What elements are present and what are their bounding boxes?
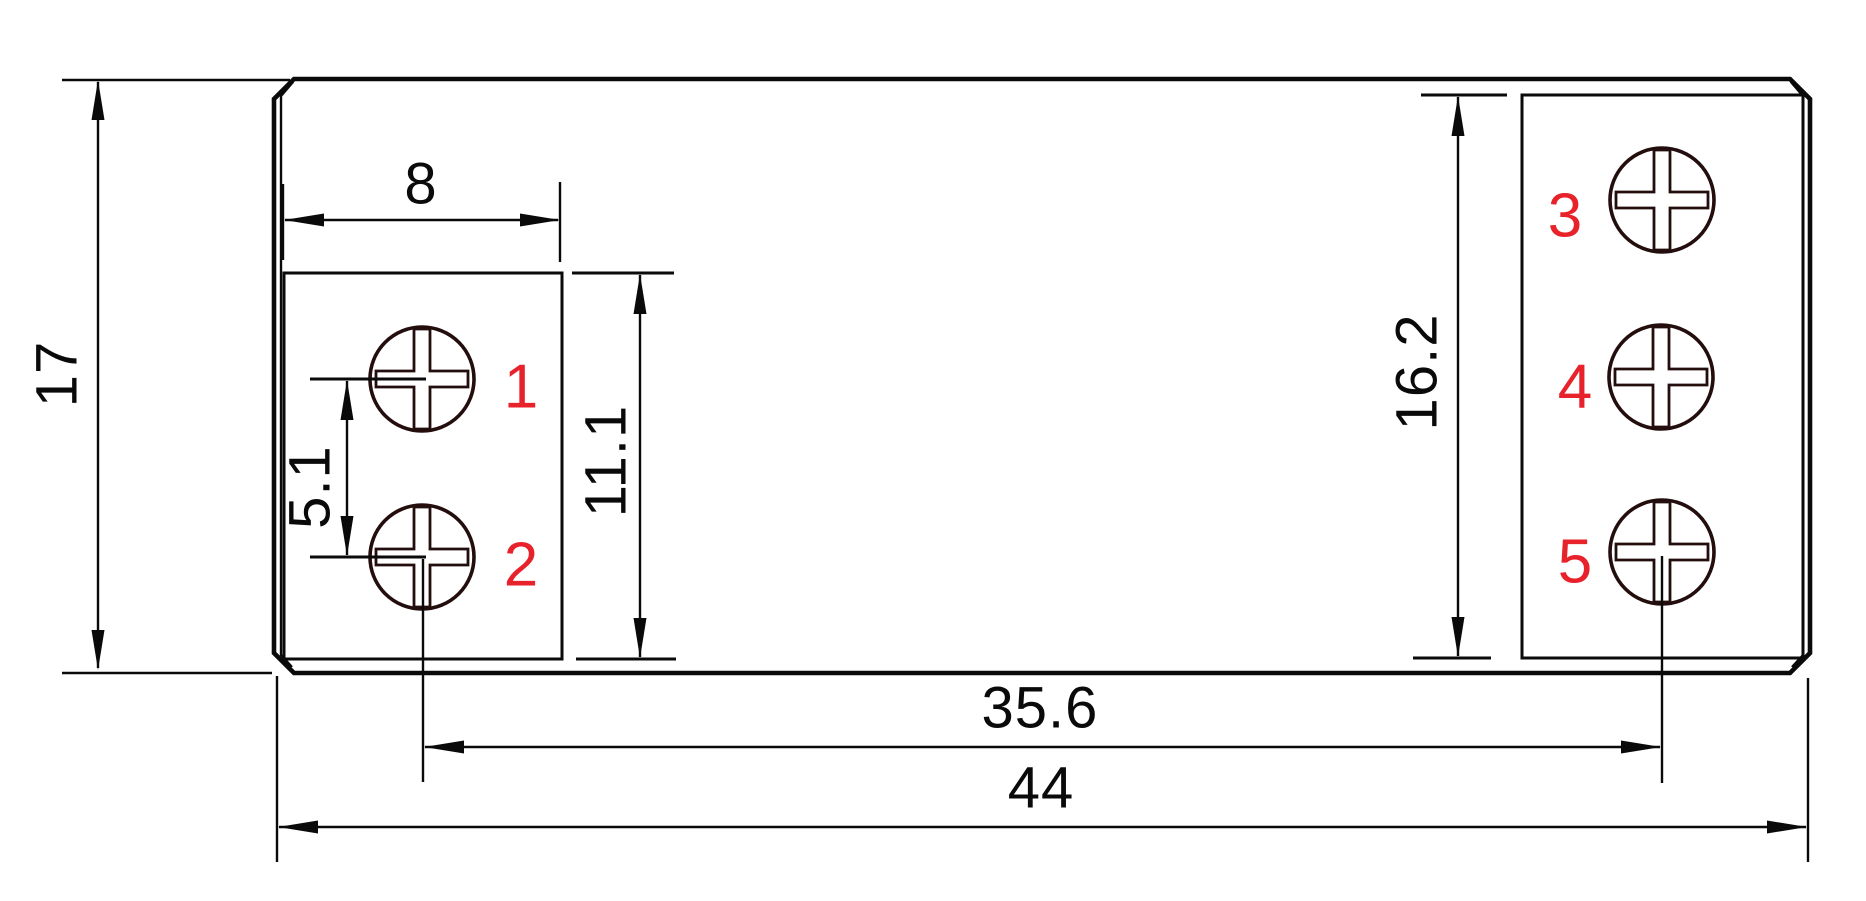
dim-screw-column-span: 35.6 bbox=[423, 556, 1662, 783]
arrowhead-down bbox=[634, 618, 647, 658]
dim-overall-width-label: 44 bbox=[1008, 756, 1075, 821]
body-right-step-line bbox=[1791, 82, 1803, 667]
terminal-1-label: 1 bbox=[504, 353, 538, 422]
dim-left-recess-height-label: 11.1 bbox=[574, 405, 639, 518]
dim-screw-column-span-label: 35.6 bbox=[982, 676, 1099, 741]
terminal-4-label: 4 bbox=[1558, 353, 1592, 422]
terminal-3-label: 3 bbox=[1548, 182, 1582, 251]
arrowhead-up bbox=[634, 274, 647, 314]
arrowhead-up bbox=[92, 80, 105, 120]
dim-left-recess-height: 11.1 bbox=[572, 273, 676, 659]
dim-screw-pitch-label: 5.1 bbox=[278, 445, 343, 529]
dim-left-recess-width-label: 8 bbox=[404, 152, 437, 217]
terminal-5-label: 5 bbox=[1558, 528, 1592, 597]
dim-left-recess-width: 8 bbox=[283, 152, 560, 263]
arrowhead-up bbox=[1452, 96, 1465, 136]
arrowhead-left bbox=[284, 214, 324, 227]
terminal-block-drawing: 1 2 3 4 5 17 8 5.1 11.1 bbox=[0, 0, 1866, 901]
arrowhead-right bbox=[1621, 741, 1661, 754]
arrowhead-right bbox=[1767, 821, 1807, 834]
terminal-2-label: 2 bbox=[504, 531, 538, 600]
dim-overall-height: 17 bbox=[25, 80, 291, 673]
dim-right-recess-height-label: 16.2 bbox=[1385, 314, 1450, 431]
arrowhead-left bbox=[424, 741, 464, 754]
screw-4 bbox=[1609, 325, 1713, 429]
arrowhead-right bbox=[520, 214, 560, 227]
dim-right-recess-height: 16.2 bbox=[1385, 95, 1508, 658]
arrowhead-down bbox=[1452, 617, 1465, 657]
dim-screw-pitch: 5.1 bbox=[278, 379, 427, 557]
dim-overall-height-label: 17 bbox=[25, 341, 90, 408]
arrowhead-left bbox=[278, 821, 318, 834]
arrowhead-down bbox=[92, 630, 105, 670]
screw-3 bbox=[1610, 148, 1714, 252]
screws bbox=[370, 148, 1714, 609]
arrowhead-up bbox=[341, 380, 354, 420]
technical-drawing-page: 1 2 3 4 5 17 8 5.1 11.1 bbox=[0, 0, 1866, 901]
